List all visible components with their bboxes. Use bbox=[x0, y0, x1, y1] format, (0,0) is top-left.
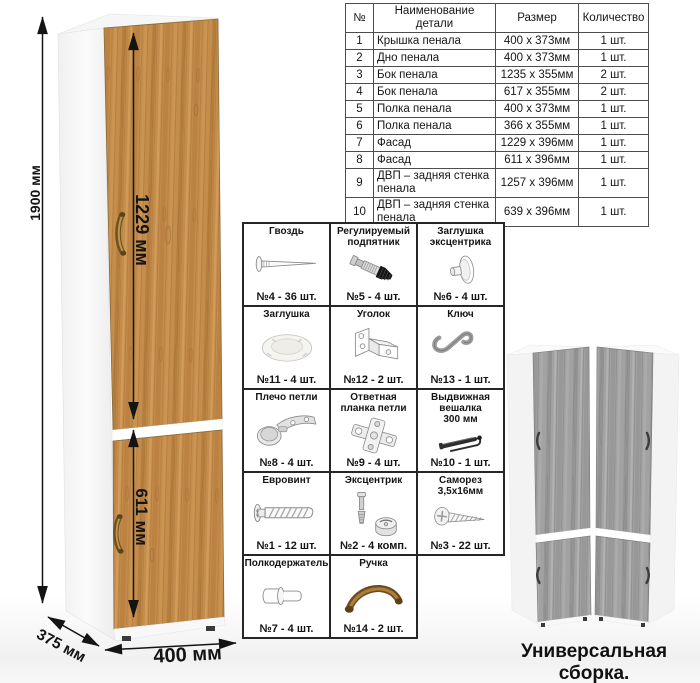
table-row: 1Крышка пенала400 х 373мм1 шт. bbox=[346, 33, 649, 50]
table-row: 2Дно пенала400 х 373мм1 шт. bbox=[346, 50, 649, 67]
cabinet-illustration: 1900 мм 1229 мм 611 мм 400 мм 375 мм bbox=[0, 0, 240, 683]
handle-icon bbox=[336, 569, 412, 623]
hardware-grid: Гвоздь №4 - 36 шт. Регулируемый подпятни… bbox=[242, 222, 505, 639]
hardware-item-count: №10 - 1 шт. bbox=[430, 457, 490, 470]
part-qty: 1 шт. bbox=[579, 33, 649, 50]
part-num: 3 bbox=[346, 67, 374, 84]
part-qty: 1 шт. bbox=[579, 101, 649, 118]
col-header-name: Наименование детали bbox=[374, 4, 496, 33]
assembly-sheet: 1900 мм 1229 мм 611 мм 400 мм 375 мм № Н… bbox=[0, 0, 700, 683]
hardware-item-count: №1 - 12 шт. bbox=[256, 540, 316, 553]
part-qty: 1 шт. bbox=[579, 198, 649, 227]
corner-bracket-icon bbox=[336, 320, 412, 374]
part-size: 617 х 355мм bbox=[496, 84, 579, 101]
hardware-item-count: №12 - 2 шт. bbox=[343, 374, 403, 387]
part-size: 400 х 373мм bbox=[496, 50, 579, 67]
hardware-item-count: №6 - 4 шт. bbox=[434, 291, 488, 304]
hardware-item-count: №5 - 4 шт. bbox=[347, 291, 401, 304]
col-header-num: № bbox=[346, 4, 374, 33]
upper-door-dimension-label: 1229 мм bbox=[132, 194, 152, 266]
table-row: 8Фасад611 х 396мм1 шт. bbox=[346, 152, 649, 169]
hardware-item-count: №11 - 4 шт. bbox=[257, 374, 317, 387]
hardware-item: Заглушка №11 - 4 шт. bbox=[243, 306, 330, 389]
hardware-item: Выдвижная вешалка 300 мм №10 - 1 шт. bbox=[417, 389, 504, 472]
part-name: Фасад bbox=[374, 135, 496, 152]
hardware-item-count: №14 - 2 шт. bbox=[343, 623, 403, 636]
hardware-item: Саморез 3,5х16мм №3 - 22 шт. bbox=[417, 472, 504, 555]
hardware-item-count: №2 - 4 комп. bbox=[340, 540, 407, 553]
hardware-item: Полкодержатель №7 - 4 шт. bbox=[243, 555, 330, 638]
variant-cabinet-left bbox=[507, 345, 591, 627]
cabinet-upper-door bbox=[104, 19, 222, 430]
hardware-item-title: Евровинт bbox=[262, 475, 310, 486]
adjustable-foot-icon bbox=[336, 248, 412, 291]
part-num: 7 bbox=[346, 135, 374, 152]
part-num: 4 bbox=[346, 84, 374, 101]
part-num: 1 bbox=[346, 33, 374, 50]
hardware-item: Ручка №14 - 2 шт. bbox=[330, 555, 417, 638]
hardware-item-title: Гвоздь bbox=[269, 226, 304, 237]
hardware-item-title: Саморез 3,5х16мм bbox=[438, 475, 483, 497]
hardware-item-title: Уголок bbox=[357, 309, 390, 320]
cabinet-foot bbox=[206, 626, 215, 631]
hardware-item: Заглушка эксцентрика №6 - 4 шт. bbox=[417, 223, 504, 306]
nail-icon bbox=[248, 237, 326, 291]
hardware-item: Плечо петли №8 - 4 шт. bbox=[243, 389, 330, 472]
depth-dimension-label: 375 мм bbox=[34, 626, 89, 666]
part-name: ДВП – задняя стенка пенала bbox=[374, 169, 496, 198]
table-row: 3Бок пенала1235 х 355мм2 шт. bbox=[346, 67, 649, 84]
hardware-item: Ответная планка петли №9 - 4 шт. bbox=[330, 389, 417, 472]
part-qty: 1 шт. bbox=[579, 169, 649, 198]
cabinet-lower-door bbox=[113, 430, 224, 629]
part-qty: 2 шт. bbox=[579, 67, 649, 84]
part-num: 9 bbox=[346, 169, 374, 198]
part-qty: 1 шт. bbox=[579, 50, 649, 67]
hardware-item: Евровинт №1 - 12 шт. bbox=[243, 472, 330, 555]
hardware-item-title: Полкодержатель bbox=[245, 558, 329, 569]
part-name: Дно пенала bbox=[374, 50, 496, 67]
hardware-item-count: №7 - 4 шт. bbox=[260, 623, 314, 636]
col-header-qty: Количество bbox=[579, 4, 649, 33]
part-qty: 2 шт. bbox=[579, 84, 649, 101]
hardware-item-title: Плечо петли bbox=[255, 392, 317, 403]
hinge-arm-icon bbox=[249, 403, 325, 457]
part-name: Полка пенала bbox=[374, 118, 496, 135]
part-qty: 1 шт. bbox=[579, 118, 649, 135]
part-num: 2 bbox=[346, 50, 374, 67]
part-size: 639 х 396мм bbox=[496, 198, 579, 227]
universal-assembly-caption: Универсальная сборка. bbox=[488, 641, 700, 683]
table-row: 6Полка пенала366 х 355мм1 шт. bbox=[346, 118, 649, 135]
hardware-item-title: Ответная планка петли bbox=[332, 392, 415, 414]
shelf-pin-icon bbox=[248, 569, 326, 623]
hardware-item-title: Выдвижная вешалка 300 мм bbox=[431, 392, 490, 425]
part-name: Фасад bbox=[374, 152, 496, 169]
cabinet-body bbox=[58, 14, 225, 641]
hardware-empty-cell bbox=[417, 555, 504, 638]
part-name: Полка пенала bbox=[374, 101, 496, 118]
hardware-item-title: Ключ bbox=[447, 309, 473, 320]
hex-key-icon bbox=[423, 320, 499, 374]
part-size: 1235 х 355мм bbox=[496, 67, 579, 84]
hardware-item: Эксцентрик №2 - 4 комп. bbox=[330, 472, 417, 555]
hardware-item-count: №3 - 22 шт. bbox=[430, 540, 490, 553]
hardware-row: Гвоздь №4 - 36 шт. Регулируемый подпятни… bbox=[243, 223, 504, 306]
height-dimension-label: 1900 мм bbox=[27, 165, 43, 221]
parts-table-header-row: № Наименование детали Размер Количество bbox=[346, 4, 649, 33]
variant-cabinet-right bbox=[595, 345, 679, 627]
table-row: 5Полка пенала400 х 373мм1 шт. bbox=[346, 101, 649, 118]
hardware-row: Плечо петли №8 - 4 шт. Ответная планка п… bbox=[243, 389, 504, 472]
hardware-row: Заглушка №11 - 4 шт. Уголок №12 - 2 шт. bbox=[243, 306, 504, 389]
lower-door-dimension-label: 611 мм bbox=[132, 488, 151, 545]
hardware-item-title: Ручка bbox=[359, 558, 388, 569]
part-size: 611 х 396мм bbox=[496, 152, 579, 169]
hardware-item-title: Эксцентрик bbox=[345, 475, 402, 486]
hardware-item-count: №9 - 4 шт. bbox=[347, 457, 401, 470]
hardware-item: Регулируемый подпятник №5 - 4 шт. bbox=[330, 223, 417, 306]
hardware-item: Ключ №13 - 1 шт. bbox=[417, 306, 504, 389]
hardware-item: Гвоздь №4 - 36 шт. bbox=[243, 223, 330, 306]
table-row: 9ДВП – задняя стенка пенала1257 х 396мм1… bbox=[346, 169, 649, 198]
col-header-size: Размер bbox=[496, 4, 579, 33]
table-row: 4Бок пенала617 х 355мм2 шт. bbox=[346, 84, 649, 101]
pullout-hanger-icon bbox=[423, 425, 499, 457]
width-dimension-label: 400 мм bbox=[153, 642, 223, 668]
cabinet-foot bbox=[122, 636, 131, 641]
hardware-item-count: №8 - 4 шт. bbox=[260, 457, 314, 470]
cam-cap-icon bbox=[423, 248, 499, 291]
hardware-row: Полкодержатель №7 - 4 шт. Ручка №14 - 2 … bbox=[243, 555, 504, 638]
part-name: Бок пенала bbox=[374, 84, 496, 101]
part-size: 400 х 373мм bbox=[496, 33, 579, 50]
part-size: 400 х 373мм bbox=[496, 101, 579, 118]
self-tapping-screw-icon bbox=[423, 497, 499, 540]
hinge-plate-icon bbox=[336, 414, 412, 457]
hardware-item-title: Регулируемый подпятник bbox=[332, 226, 415, 248]
part-size: 1257 х 396мм bbox=[496, 169, 579, 198]
euro-screw-icon bbox=[248, 486, 326, 540]
hardware-item-count: №13 - 1 шт. bbox=[430, 374, 490, 387]
hardware-row: Евровинт №1 - 12 шт. Эксцентрик bbox=[243, 472, 504, 555]
universal-assembly-variants bbox=[493, 332, 693, 632]
part-num: 8 bbox=[346, 152, 374, 169]
part-num: 6 bbox=[346, 118, 374, 135]
part-name: Крышка пенала bbox=[374, 33, 496, 50]
parts-table: № Наименование детали Размер Количество … bbox=[345, 3, 649, 227]
table-row: 7Фасад1229 х 396мм1 шт. bbox=[346, 135, 649, 152]
part-size: 366 х 355мм bbox=[496, 118, 579, 135]
hardware-item: Уголок №12 - 2 шт. bbox=[330, 306, 417, 389]
part-size: 1229 х 396мм bbox=[496, 135, 579, 152]
part-qty: 1 шт. bbox=[579, 135, 649, 152]
hardware-item-title: Заглушка bbox=[263, 309, 309, 320]
part-qty: 1 шт. bbox=[579, 152, 649, 169]
part-name: Бок пенала bbox=[374, 67, 496, 84]
eccentric-cam-icon bbox=[336, 486, 412, 540]
plug-cap-icon bbox=[248, 320, 326, 374]
hardware-item-count: №4 - 36 шт. bbox=[256, 291, 316, 304]
hardware-item-title: Заглушка эксцентрика bbox=[419, 226, 502, 248]
part-num: 5 bbox=[346, 101, 374, 118]
